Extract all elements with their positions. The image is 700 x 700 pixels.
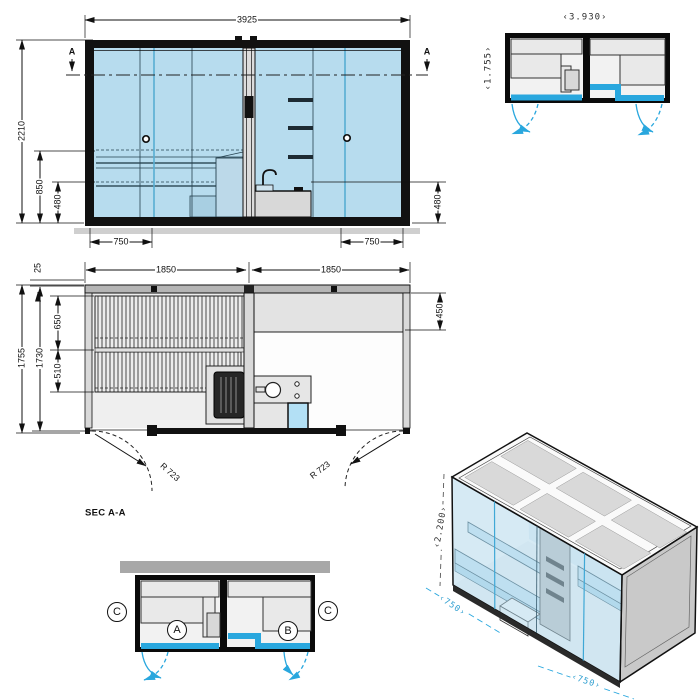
drawing-canvas	[0, 0, 700, 700]
section-marker-a-left: A	[68, 48, 77, 57]
back-wall-band	[120, 561, 330, 573]
sink	[266, 383, 281, 398]
mini-plan	[508, 35, 668, 135]
roof-band	[85, 40, 410, 48]
counter-item	[294, 187, 303, 191]
left-wall	[85, 293, 92, 428]
heater-elevation	[216, 158, 243, 217]
isometric-view	[426, 433, 697, 699]
room-label-b: B	[278, 621, 298, 641]
dim-sill-right: 480	[434, 193, 443, 210]
dim-sill-left: 480	[54, 193, 63, 210]
dim-bench-right: 450	[436, 302, 445, 319]
sink-basin	[256, 185, 273, 191]
sauna-bench-upper	[95, 296, 244, 348]
control-panel	[245, 96, 254, 118]
dim-module-left: 1850	[155, 266, 177, 275]
front-elevation	[66, 36, 428, 234]
section-partition	[220, 575, 227, 650]
front-wall	[152, 428, 341, 434]
plan-view	[85, 285, 410, 491]
knob	[295, 394, 299, 398]
section-marker-a-right: A	[423, 48, 432, 57]
sauna-heater	[214, 372, 244, 418]
right-wall	[403, 293, 410, 428]
shower-tray-plan	[288, 403, 308, 429]
knob	[295, 382, 299, 386]
technical-drawing-sheet: { "front_elevation": { "width": "3925", …	[0, 0, 700, 700]
dim-module-right: 1850	[320, 266, 342, 275]
shelf	[288, 98, 313, 102]
section-label-c-left: C	[107, 602, 127, 622]
dim-elevation-height: 2210	[18, 120, 27, 142]
shelf	[288, 126, 313, 130]
door-hinge-left	[147, 425, 157, 436]
dim-bench-upper: 650	[54, 313, 63, 330]
partition-wall	[243, 48, 255, 217]
door-handle-right	[344, 135, 350, 141]
mini-plan-width: ‹3.930›	[562, 14, 609, 23]
section-title: SEC A-A	[84, 508, 127, 518]
dim-bench-lower: 510	[54, 362, 63, 379]
door-handle-left	[143, 136, 149, 142]
partition-plan	[244, 293, 254, 428]
section-plan	[120, 561, 330, 680]
base-band	[85, 217, 410, 226]
door-swing-left	[92, 431, 152, 491]
shelf	[288, 155, 313, 159]
dim-wall-offset: 25	[34, 262, 43, 274]
counter-elevation	[251, 191, 311, 217]
dim-depth-inner: 1730	[36, 347, 45, 369]
sink-tap	[256, 387, 265, 392]
dim-door-left: 750	[112, 238, 129, 247]
door-hinge-right	[336, 425, 346, 436]
dim-bench-height: 850	[36, 178, 45, 195]
mini-plan-partition	[583, 35, 590, 100]
cabinet-plan	[254, 403, 288, 429]
dim-elevation-width: 3925	[236, 16, 258, 25]
mini-plan-depth: ‹1.755›	[485, 45, 494, 92]
right-bench-plan	[254, 293, 403, 332]
room-label-a: A	[167, 620, 187, 640]
dim-door-right: 750	[363, 238, 380, 247]
dim-depth-outer: 1755	[18, 347, 27, 369]
door-swing-right	[345, 431, 403, 489]
section-label-c-right: C	[318, 601, 338, 621]
ground-shadow	[74, 228, 420, 234]
